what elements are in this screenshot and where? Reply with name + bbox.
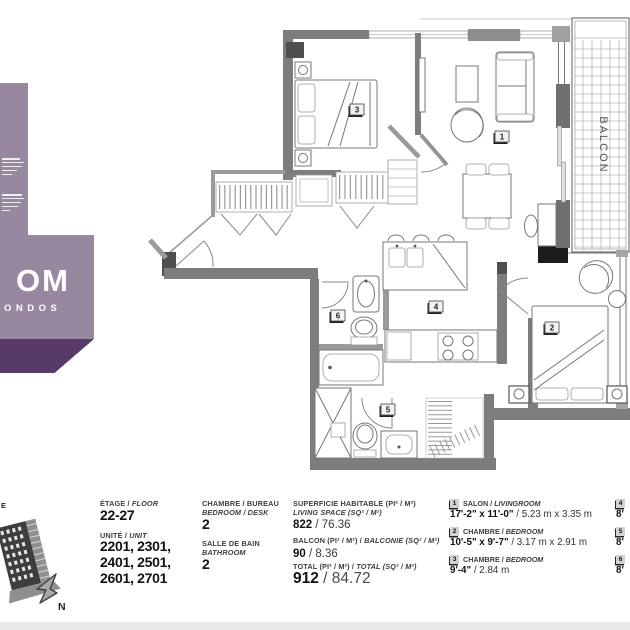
- nightstand: [295, 62, 311, 78]
- pillow: [536, 388, 568, 400]
- pillow: [571, 388, 603, 400]
- sink-basin: [407, 248, 423, 267]
- balcony-slider-panel: [562, 162, 566, 202]
- room-legend-3: 3CHAMBRE / BEDROOM 9'-4" / 2.84 m: [450, 555, 543, 576]
- armchair: [451, 108, 483, 142]
- room-legend-6-cut: 6 8': [616, 555, 629, 576]
- stove: [438, 333, 478, 360]
- balcony-label: BALCON: [597, 116, 609, 173]
- dining-chair: [466, 164, 486, 175]
- room-legend-num: 2: [450, 527, 459, 536]
- nightstand: [295, 150, 311, 166]
- north-label: N: [58, 601, 66, 613]
- logo-fine-print-block-2: [2, 194, 26, 213]
- fridge: [387, 332, 411, 360]
- bathroom-label: SALLE DE BAINBATHROOM: [202, 540, 260, 558]
- total-area-value: 912 / 84.72: [293, 570, 371, 588]
- bedroom-count: 2: [202, 516, 210, 532]
- floor-plan: BALCON: [148, 8, 630, 494]
- pillow: [298, 116, 315, 144]
- sink-basin: [389, 248, 405, 267]
- room-legend-5-cut: 5 8': [616, 527, 629, 548]
- room-legend-num: 3: [450, 555, 459, 564]
- brochure-page: OM ONDOS BALCON: [0, 0, 630, 630]
- room-tag-3: 3: [355, 106, 360, 115]
- balcony-area-value: 90 / 8.36: [293, 544, 338, 562]
- bedroom-3-furniture: [295, 62, 377, 166]
- bathroom-fixtures: [315, 350, 417, 458]
- living-room-furniture: [419, 52, 556, 246]
- room-legend-4-cut: 4 8': [616, 499, 629, 520]
- living-space-value: 822 / 76.36: [293, 515, 351, 533]
- logo-ribbon-fold: [0, 339, 94, 373]
- balcony: BALCON: [572, 18, 629, 252]
- sofa: [496, 52, 534, 122]
- logo-tagline: ONDOS: [4, 303, 61, 314]
- pillow: [298, 84, 315, 112]
- dining-chair: [466, 218, 486, 229]
- room-legend-1: 1SALON / LIVINGROOM 17'-2" x 11'-0" / 5.…: [450, 499, 592, 520]
- desk-chair: [525, 215, 538, 237]
- bottom-band: [0, 622, 630, 630]
- logo-fine-print-block-1: [2, 158, 26, 177]
- kitchen-fixtures: [383, 235, 497, 362]
- room-tag-5: 5: [386, 406, 391, 415]
- room-legend-2: 2CHAMBRE / BEDROOM 10'-5" x 9'-7" / 3.17…: [450, 527, 587, 548]
- tv-console: [419, 58, 425, 112]
- room-tag-2: 2: [550, 324, 555, 333]
- bar-stools: [388, 235, 454, 241]
- powder-room-fixtures: [351, 276, 379, 345]
- toilet: [353, 423, 377, 449]
- dining-chair: [489, 218, 509, 229]
- logo-wordmark: OM: [16, 263, 70, 299]
- dining-table: [463, 174, 511, 218]
- coffee-table: [456, 66, 478, 102]
- room-legend-num: 1: [450, 499, 459, 508]
- dining-chair: [489, 164, 509, 175]
- site-key-plan: E N: [0, 490, 80, 630]
- desk: [538, 204, 556, 246]
- bedroom-label: CHAMBRE / BUREAUBEDROOM / DESK: [202, 500, 279, 518]
- unit-value: 2201, 2301, 2401, 2501, 2601, 2701: [100, 539, 171, 586]
- site-plan-text-fragment: E: [1, 501, 6, 510]
- room-tag-1: 1: [500, 133, 505, 142]
- wardrobe-block: [538, 246, 568, 263]
- bedroom-2-furniture: [509, 254, 627, 403]
- room-tag-4: 4: [434, 303, 439, 312]
- bathroom-count: 2: [202, 556, 210, 572]
- floor-value: 22-27: [100, 507, 134, 523]
- room-tag-6: 6: [336, 312, 341, 321]
- side-table: [609, 291, 626, 308]
- balcony-slider-panel: [558, 126, 562, 166]
